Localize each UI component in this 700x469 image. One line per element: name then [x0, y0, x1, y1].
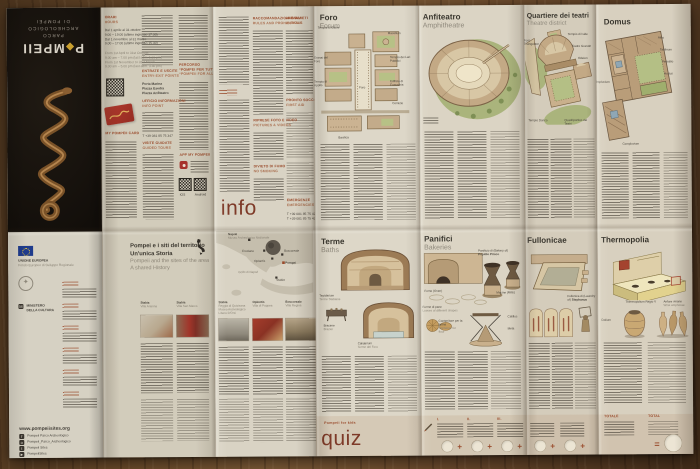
text-block — [573, 139, 594, 219]
text-block — [425, 351, 455, 409]
amphorae-label: Anfore vinarieWine amphorae — [663, 300, 684, 307]
plan-label: Quadriportico dei Teatri — [564, 119, 592, 126]
my-pompeii-card-image — [104, 103, 135, 125]
text-block — [62, 289, 96, 299]
plan-label: Tempio di Apollo — [314, 80, 334, 87]
amphorae-illustration — [653, 310, 691, 338]
text-block — [530, 423, 554, 437]
accessible-route-heading: PERCORSO“POMPEI PER TUTTI”“POMPEII FOR A… — [179, 63, 215, 77]
photo-of-pompeii-map: { "cover": {"logo_p":"P","logo_d":"◆","l… — [0, 0, 700, 469]
text-block — [219, 399, 249, 443]
thumb-caption: StabiaReggia di Quisisana Museo Archeolo… — [218, 301, 252, 316]
plan-label: Foro Triangolare — [524, 39, 541, 46]
text-block — [253, 398, 283, 442]
bronze-snake-illustration — [19, 84, 90, 224]
qr-code-ios — [180, 179, 191, 190]
text-block — [143, 154, 174, 219]
anfiteatro-title: AnfiteatroAmphitheatre — [423, 13, 465, 30]
rules-columns: RACCOMANDAZIONI E DIVIETIRULES AND PROHI… — [213, 6, 315, 229]
text-block — [105, 141, 136, 219]
text-block — [388, 356, 417, 412]
text-block — [253, 132, 283, 160]
rust-heading — [219, 90, 237, 96]
text-block — [457, 131, 487, 219]
teatri-section: Quartiere dei teatriTheatre district — [524, 4, 597, 226]
emergency-phones: T +39 081 85 75 423 408T +39 081 85 75 4… — [287, 212, 316, 221]
panel-domus-thermopolia: Domus Atrio Tablinum Peristilio Ho — [596, 4, 694, 455]
no-smoking-heading: DIVIETO DI FUMONO SMOKING — [254, 164, 286, 173]
quiz-answer-circle — [564, 440, 576, 452]
text-block — [664, 152, 688, 218]
text-block — [322, 356, 351, 412]
plan-label: Tempio di Giove — [318, 26, 340, 30]
panel-cover-credits: P◆MPEII PARCOARCHEOLOGICODI POMPEI UNION… — [7, 8, 104, 459]
mill-section-illustration — [464, 311, 506, 347]
text-block — [177, 343, 209, 393]
plan-label: Peristilio — [662, 60, 673, 64]
plus-sign: + — [550, 442, 555, 451]
photo-reggia-quisisana — [219, 319, 249, 341]
text-block — [560, 423, 584, 437]
text-block — [353, 144, 382, 220]
teatri-title: Quartiere dei teatriTheatre district — [527, 13, 589, 28]
panel-foro-terme: ForoForum — [314, 6, 422, 457]
panel-anfiteatro-panifici: AnfiteatroAmphitheatre — [419, 5, 527, 456]
map-label-boscoreale: Boscoreale — [284, 249, 299, 253]
plan-label: Tempio Dorico — [528, 119, 547, 123]
dolium-label: Dolium — [602, 318, 611, 322]
text-block — [63, 377, 97, 387]
plan-label: Basilica — [338, 136, 348, 140]
instagram-icon: o — [19, 440, 24, 445]
quiz-numeral: I. — [437, 417, 439, 422]
domus-section: Domus Atrio Tablinum Peristilio Ho — [596, 4, 692, 227]
anfiteatro-section: AnfiteatroAmphitheatre — [419, 5, 525, 228]
ministry-logo: M — [18, 304, 23, 309]
text-block — [179, 15, 208, 61]
map-label-ercolano: Ercolano — [242, 250, 254, 254]
quiz-questions-band: + + — [526, 414, 598, 454]
mills-label: Macine (Mills) — [496, 291, 515, 295]
brazier-illustration — [323, 306, 349, 322]
twitter-handle: Pompeii Sites — [27, 446, 47, 451]
photo-villa-san-marco — [177, 315, 209, 337]
pompeii-logo: P◆MPEII — [13, 41, 93, 56]
fresco-panels-illustration — [527, 307, 573, 339]
panel-teatri-fullonicae: Quartiere dei teatriTheatre district — [524, 4, 599, 454]
photo-villa-arianna — [141, 315, 173, 337]
totale-heading: TOTALE — [604, 414, 619, 419]
terme-title: TermeBaths — [321, 238, 345, 255]
youtube-handle: PompeiiSites — [27, 452, 46, 457]
text-block — [467, 423, 493, 437]
photo-villa-regina — [286, 318, 316, 340]
domus-plan-illustration — [600, 30, 677, 142]
diamond-icon: ◆ — [65, 41, 74, 52]
catillus-label: Catillus — [508, 315, 518, 319]
text-block — [142, 112, 173, 132]
quiz-answer-circle — [471, 440, 483, 452]
calidarium-label: CalidariumTerme del Foro — [358, 342, 378, 349]
hours-heading: ORARIHOURS — [105, 15, 118, 24]
plan-label: Comizio — [392, 102, 403, 106]
cover-subtitle: PARCOARCHEOLOGICODI POMPEI — [13, 18, 93, 39]
quiz-numeral: II. — [467, 417, 470, 422]
plan-label: Atrio — [658, 36, 664, 40]
tepidarium-illustration — [335, 244, 415, 292]
eu-flag-logo — [18, 246, 33, 256]
total-heading: TOTAL — [648, 414, 660, 419]
unfolded-pompeii-brochure: P◆MPEII PARCOARCHEOLOGICODI POMPEI UNION… — [7, 4, 694, 458]
equals-sign: = — [654, 439, 659, 449]
quiz-total-circle — [664, 434, 682, 452]
text-block — [550, 139, 571, 219]
italy-emblem-logo: ✦ — [18, 276, 33, 291]
text-block — [287, 162, 314, 194]
map-label-napoli: NapoliMuseo Archeologico Nazionale — [228, 232, 269, 239]
facebook-handle: Pompeii Parco Archeologico — [27, 434, 68, 439]
youtube-icon: ► — [19, 452, 24, 457]
text-block — [286, 346, 316, 394]
text-block — [527, 139, 548, 219]
fullonicae-title: Fullonicae — [527, 237, 567, 246]
text-block — [254, 178, 284, 200]
emergencies-heading: EMERGENZEEMERGENCIES — [287, 198, 314, 207]
thermopolia-title: Thermopolia — [601, 236, 649, 245]
map-label-pompei: Pompei — [285, 261, 296, 265]
text-block — [219, 100, 250, 192]
text-block — [458, 351, 488, 409]
bread-label: Forme di paneLoaves of different shapes — [422, 305, 457, 312]
quiz-questions-band: I. + II. + III. + — [421, 415, 526, 456]
thumb-caption: StabiaVilla San Marco — [176, 301, 197, 308]
bay-map-section: NapoliMuseo Archeologico Nazionale Ercol… — [214, 228, 316, 457]
amphitheatre-illustration — [421, 27, 524, 124]
territory-intro: Pompei e i siti del territorioUn'unica S… — [102, 229, 215, 458]
fullonicae-section: Fullonicae Fullonica di (Laundry of) Ste… — [525, 226, 598, 454]
foro-section: ForoForum — [314, 6, 420, 229]
entrances-heading: ENTRATE E USCITEENTRY-EXIT POINTS — [142, 69, 179, 78]
text-block — [604, 421, 634, 435]
facebook-icon: f — [19, 434, 24, 439]
text-block — [219, 347, 249, 395]
plan-label: Impluvium — [596, 80, 610, 84]
gate-list: Porta MarinaPiazza EsedraPiazza Anfiteat… — [142, 82, 169, 96]
fullonica-basin-illustration — [527, 249, 591, 295]
instagram-handle: Pompeii_Parco_Archeologico — [27, 440, 70, 445]
kids-band: Pompeii for kids quiz — [316, 416, 421, 457]
text-block — [320, 144, 349, 220]
text-block — [424, 131, 454, 219]
first-aid-heading: PRONTO SOCCORSOFIRST AID — [286, 98, 316, 107]
text-block — [286, 398, 316, 442]
plan-label: Granai del Foro — [314, 56, 334, 63]
text-block — [62, 311, 96, 321]
thermopolia-section: Thermopolia Thermopolium Regio V Dolium — [597, 226, 693, 455]
plan-label: Odeion — [578, 57, 588, 61]
tepidarium-label: TepidariumTerme Stabiane — [319, 294, 340, 301]
plan-label: Tempio di Iside — [568, 33, 588, 37]
website-url: www.pompeiisites.org — [19, 426, 70, 433]
text-block — [355, 356, 384, 412]
domus-title: Domus — [604, 18, 631, 27]
terme-section: TermeBaths TepidariumTerme Stabiane Brac… — [315, 228, 421, 457]
qr-code — [107, 79, 123, 95]
credits-heading — [62, 282, 78, 286]
text-block — [191, 161, 209, 173]
fullonica-label: Fullonica di (Laundry of) Stephanus — [567, 294, 596, 301]
text-block — [648, 342, 686, 404]
hours-italian: Dal 1 aprile al 31 ottobre9.00 – 19.00 (… — [105, 28, 158, 46]
quiz-answer-circle — [534, 440, 546, 452]
panifici-section: PanificiBakeries — [420, 227, 526, 456]
text-block — [141, 343, 173, 393]
info-title: info — [221, 197, 257, 221]
info-phone: T +39 081 85 75 347 — [142, 134, 173, 139]
territory-heading: Pompei e i siti del territorioUn'unica S… — [130, 243, 209, 273]
text-block — [253, 30, 284, 114]
photo-villa-poppea — [253, 318, 283, 340]
plus-sign: + — [517, 442, 522, 451]
android-label: Android — [195, 193, 206, 198]
plus-sign: + — [580, 442, 585, 451]
plan-label: Foro — [359, 86, 365, 90]
plan-label: Edificio di Eumachia — [390, 80, 416, 87]
thumb-caption: OplontisVilla di Poppea — [252, 300, 272, 307]
text-block — [63, 399, 97, 409]
oven-label: Forno (Oven) — [424, 289, 442, 293]
thermopolium-counter-illustration — [607, 248, 691, 301]
plan-label: Tablinum — [660, 48, 672, 52]
text-block — [63, 355, 97, 365]
text-block — [602, 152, 629, 218]
text-block — [386, 144, 415, 220]
text-block — [179, 82, 208, 150]
thumb-caption: StabiaVilla Arianna — [140, 301, 157, 308]
photo-video-heading: RIPRESE FOTO E VIDEOPICTURES & VIDEOS — [253, 118, 297, 127]
counter-label: Thermopolium Regio V — [625, 300, 656, 304]
calidarium-illustration — [359, 298, 417, 340]
text-block — [286, 30, 313, 94]
plan-label: Tempio dei Lari Pubblici — [390, 56, 416, 63]
quiz-answer-circle — [501, 440, 513, 452]
pencil-icon — [423, 421, 434, 432]
text-block — [141, 399, 173, 441]
front-cover-black: P◆MPEII PARCOARCHEOLOGICODI POMPEI — [7, 8, 102, 233]
fuller-figure-illustration — [577, 307, 593, 333]
panifici-title: PanificiBakeries — [424, 235, 453, 252]
text-block — [253, 346, 283, 394]
app-heading: APP MY POMPEII — [180, 153, 211, 158]
text-block — [529, 343, 550, 409]
visitor-info-columns: ORARIHOURS Dal 1 aprile al 31 ottobre9.0… — [101, 7, 214, 230]
plan-label: Macellum — [388, 32, 401, 36]
text-block — [423, 117, 438, 125]
bakery-label: Panificio di (Bakery of) Popidio Prisco — [478, 249, 514, 256]
map-label-gulf: Golfo di Napoli — [238, 271, 258, 275]
bay-of-naples-map — [216, 230, 313, 299]
plan-label: Teatro Grande — [572, 45, 591, 49]
brazier-label: BraciereBrazier — [324, 324, 335, 331]
meta-label: Meta — [508, 327, 515, 331]
flour-label: Contenitore per la farinaContainer for f… — [439, 319, 463, 334]
map-label-oplontis: Oplontis — [254, 260, 265, 264]
quiz-answer-circle — [441, 440, 453, 452]
text-block — [177, 399, 209, 441]
hours-english: From 1st April to 31st October9.00 am – … — [105, 51, 162, 69]
text-block — [552, 343, 573, 409]
text-block — [497, 423, 523, 437]
text-block — [490, 131, 520, 219]
text-block — [633, 152, 660, 218]
text-block — [575, 343, 596, 409]
dolium-illustration — [619, 308, 649, 338]
text-block — [491, 351, 521, 409]
credits-panel: UNIONE EUROPEAFondo Europeo di Sviluppo … — [8, 232, 103, 459]
text-block — [219, 17, 249, 85]
plus-sign: + — [457, 442, 462, 451]
animals-heading: ANIMALIANIMALS — [286, 16, 303, 25]
twitter-icon: t — [19, 446, 24, 451]
pompeii-logo-rotated: P◆MPEII PARCOARCHEOLOGICODI POMPEI — [13, 18, 93, 57]
quiz-title: quiz — [321, 427, 362, 451]
infopoint-heading: UFFICIO INFORMAZIONIINFO POINT — [142, 99, 185, 108]
app-icon — [180, 161, 188, 169]
plan-label: Compluvium — [622, 142, 639, 146]
text-block — [437, 423, 463, 437]
thumb-caption: BoscorealeVilla Regina — [285, 300, 301, 307]
tours-heading: VISITE GUIDATEGUIDED TOURS — [142, 141, 172, 150]
card-heading: MY POMPEII CARD — [105, 131, 139, 136]
plus-sign: + — [487, 442, 492, 451]
panel-visitor-info: ORARIHOURS Dal 1 aprile al 31 ottobre9.0… — [101, 7, 216, 458]
panel-rules-map: RACCOMANDAZIONI E DIVIETIRULES AND PROHI… — [213, 6, 317, 457]
text-block — [63, 333, 97, 343]
text-block — [604, 342, 642, 404]
kids-label: Pompeii for kids — [324, 421, 356, 426]
map-label-stabia: Stabia — [276, 278, 285, 282]
quiz-total-band: TOTALE TOTAL = — [598, 414, 693, 455]
ios-label: iOS — [180, 193, 186, 197]
qr-code-android — [195, 179, 206, 190]
quiz-numeral: III. — [497, 417, 501, 422]
plan-label: Hortus — [664, 72, 673, 76]
